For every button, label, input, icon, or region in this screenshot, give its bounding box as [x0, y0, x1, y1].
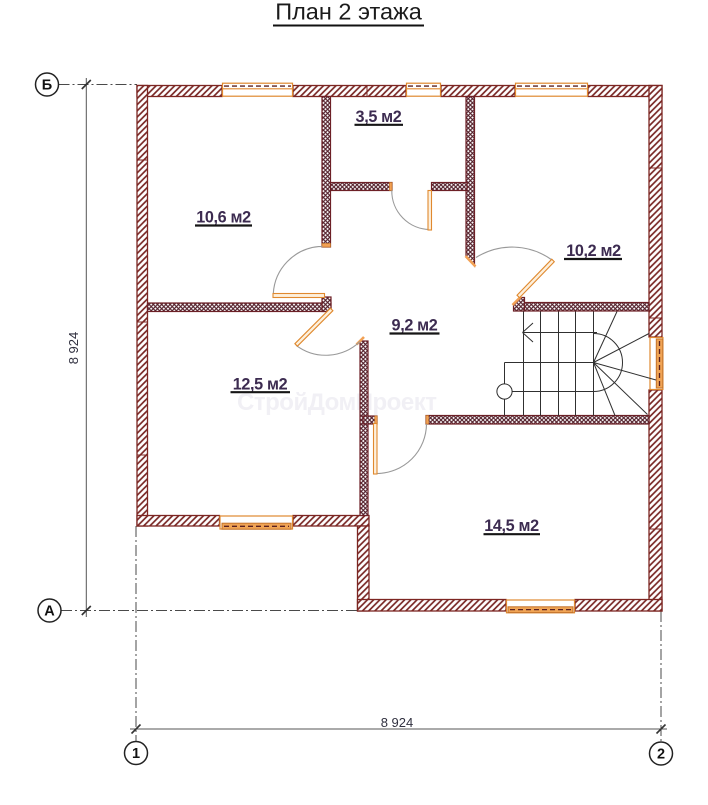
svg-text:1: 1	[132, 746, 140, 762]
svg-text:2: 2	[657, 747, 665, 763]
svg-text:Б: Б	[42, 78, 52, 94]
svg-text:А: А	[44, 604, 55, 620]
svg-text:9,2 м2: 9,2 м2	[392, 317, 438, 335]
svg-text:14,5 м2: 14,5 м2	[484, 517, 539, 535]
svg-text:3,5 м2: 3,5 м2	[356, 108, 402, 126]
svg-text:10,6 м2: 10,6 м2	[196, 209, 251, 227]
svg-text:8 924: 8 924	[381, 715, 414, 730]
svg-text:10,2 м2: 10,2 м2	[566, 242, 621, 260]
svg-text:План 2 этажа: План 2 этажа	[275, 0, 423, 25]
svg-text:12,5 м2: 12,5 м2	[233, 376, 288, 394]
svg-text:8 924: 8 924	[66, 332, 81, 365]
